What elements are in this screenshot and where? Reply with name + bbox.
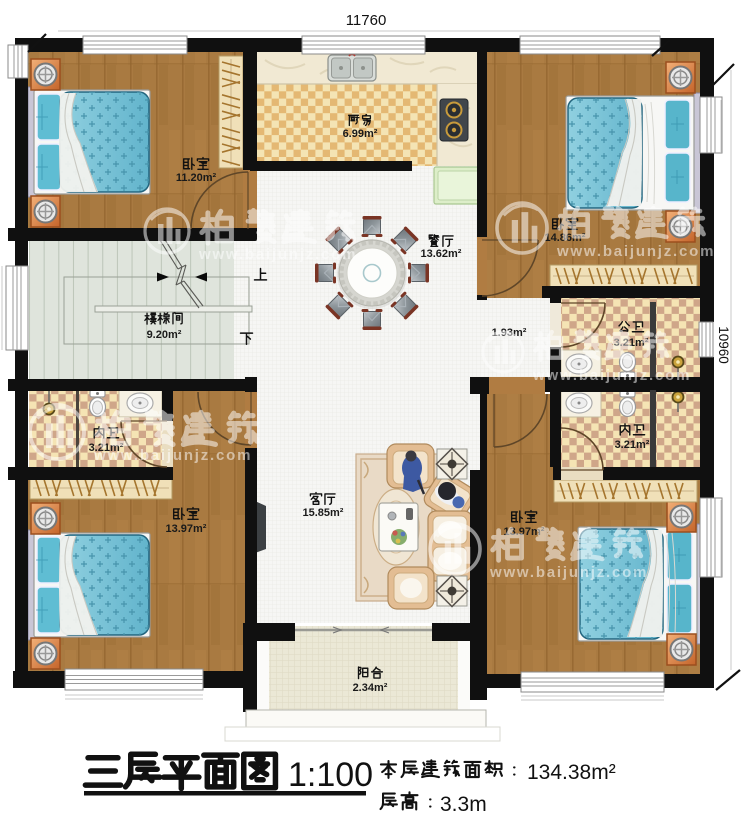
svg-text:www.baijunjz.com: www.baijunjz.com [532, 367, 691, 384]
svg-text:11760: 11760 [346, 12, 387, 29]
svg-text:15.85m²: 15.85m² [303, 507, 344, 519]
svg-text:6.99m²: 6.99m² [343, 128, 378, 140]
svg-text:13.62m²: 13.62m² [421, 248, 462, 260]
svg-text:www.baijunjz.com: www.baijunjz.com [556, 243, 715, 260]
svg-text:3.21m²: 3.21m² [615, 439, 650, 451]
svg-text:134.38m²: 134.38m² [527, 761, 616, 784]
svg-text:9.20m²: 9.20m² [147, 329, 182, 341]
svg-text:11.20m²: 11.20m² [176, 172, 217, 184]
svg-text:www.baijunjz.com: www.baijunjz.com [489, 564, 648, 581]
svg-text:2.34m²: 2.34m² [353, 682, 388, 694]
svg-text:www.baijunjz.com: www.baijunjz.com [198, 246, 357, 263]
svg-text:10960: 10960 [716, 326, 731, 364]
svg-text:13.97m²: 13.97m² [166, 523, 207, 535]
svg-text:www.baijunjz.com: www.baijunjz.com [93, 447, 252, 464]
svg-text:1:100: 1:100 [288, 756, 373, 794]
svg-text:3.3m: 3.3m [440, 793, 487, 816]
